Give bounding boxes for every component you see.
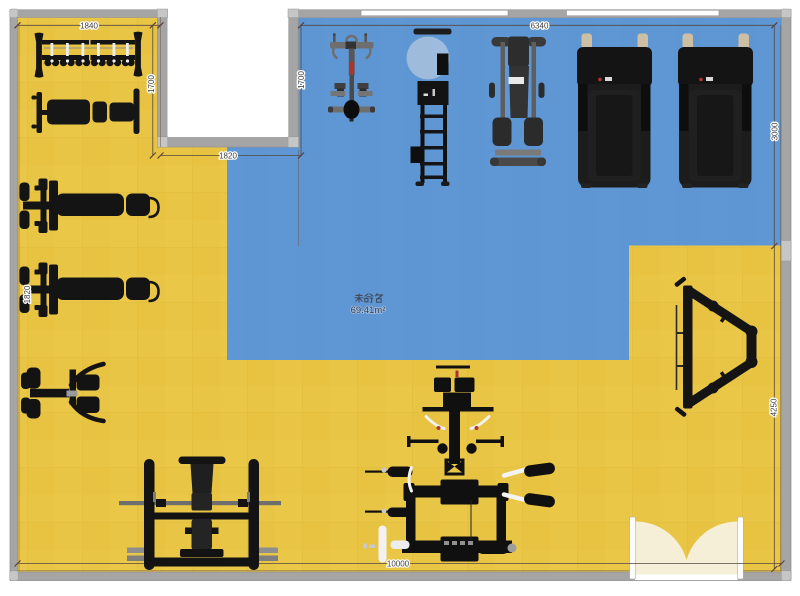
svg-text:10000: 10000	[387, 560, 410, 569]
svg-text:6340: 6340	[531, 22, 549, 31]
svg-text:4250: 4250	[770, 398, 779, 416]
svg-text:1820: 1820	[23, 285, 32, 303]
svg-text:1700: 1700	[147, 75, 156, 93]
svg-text:1820: 1820	[219, 152, 237, 161]
svg-text:69.41m²: 69.41m²	[351, 305, 386, 316]
svg-text:1840: 1840	[80, 22, 98, 31]
svg-text:3000: 3000	[770, 122, 779, 140]
svg-text:1700: 1700	[297, 71, 306, 89]
